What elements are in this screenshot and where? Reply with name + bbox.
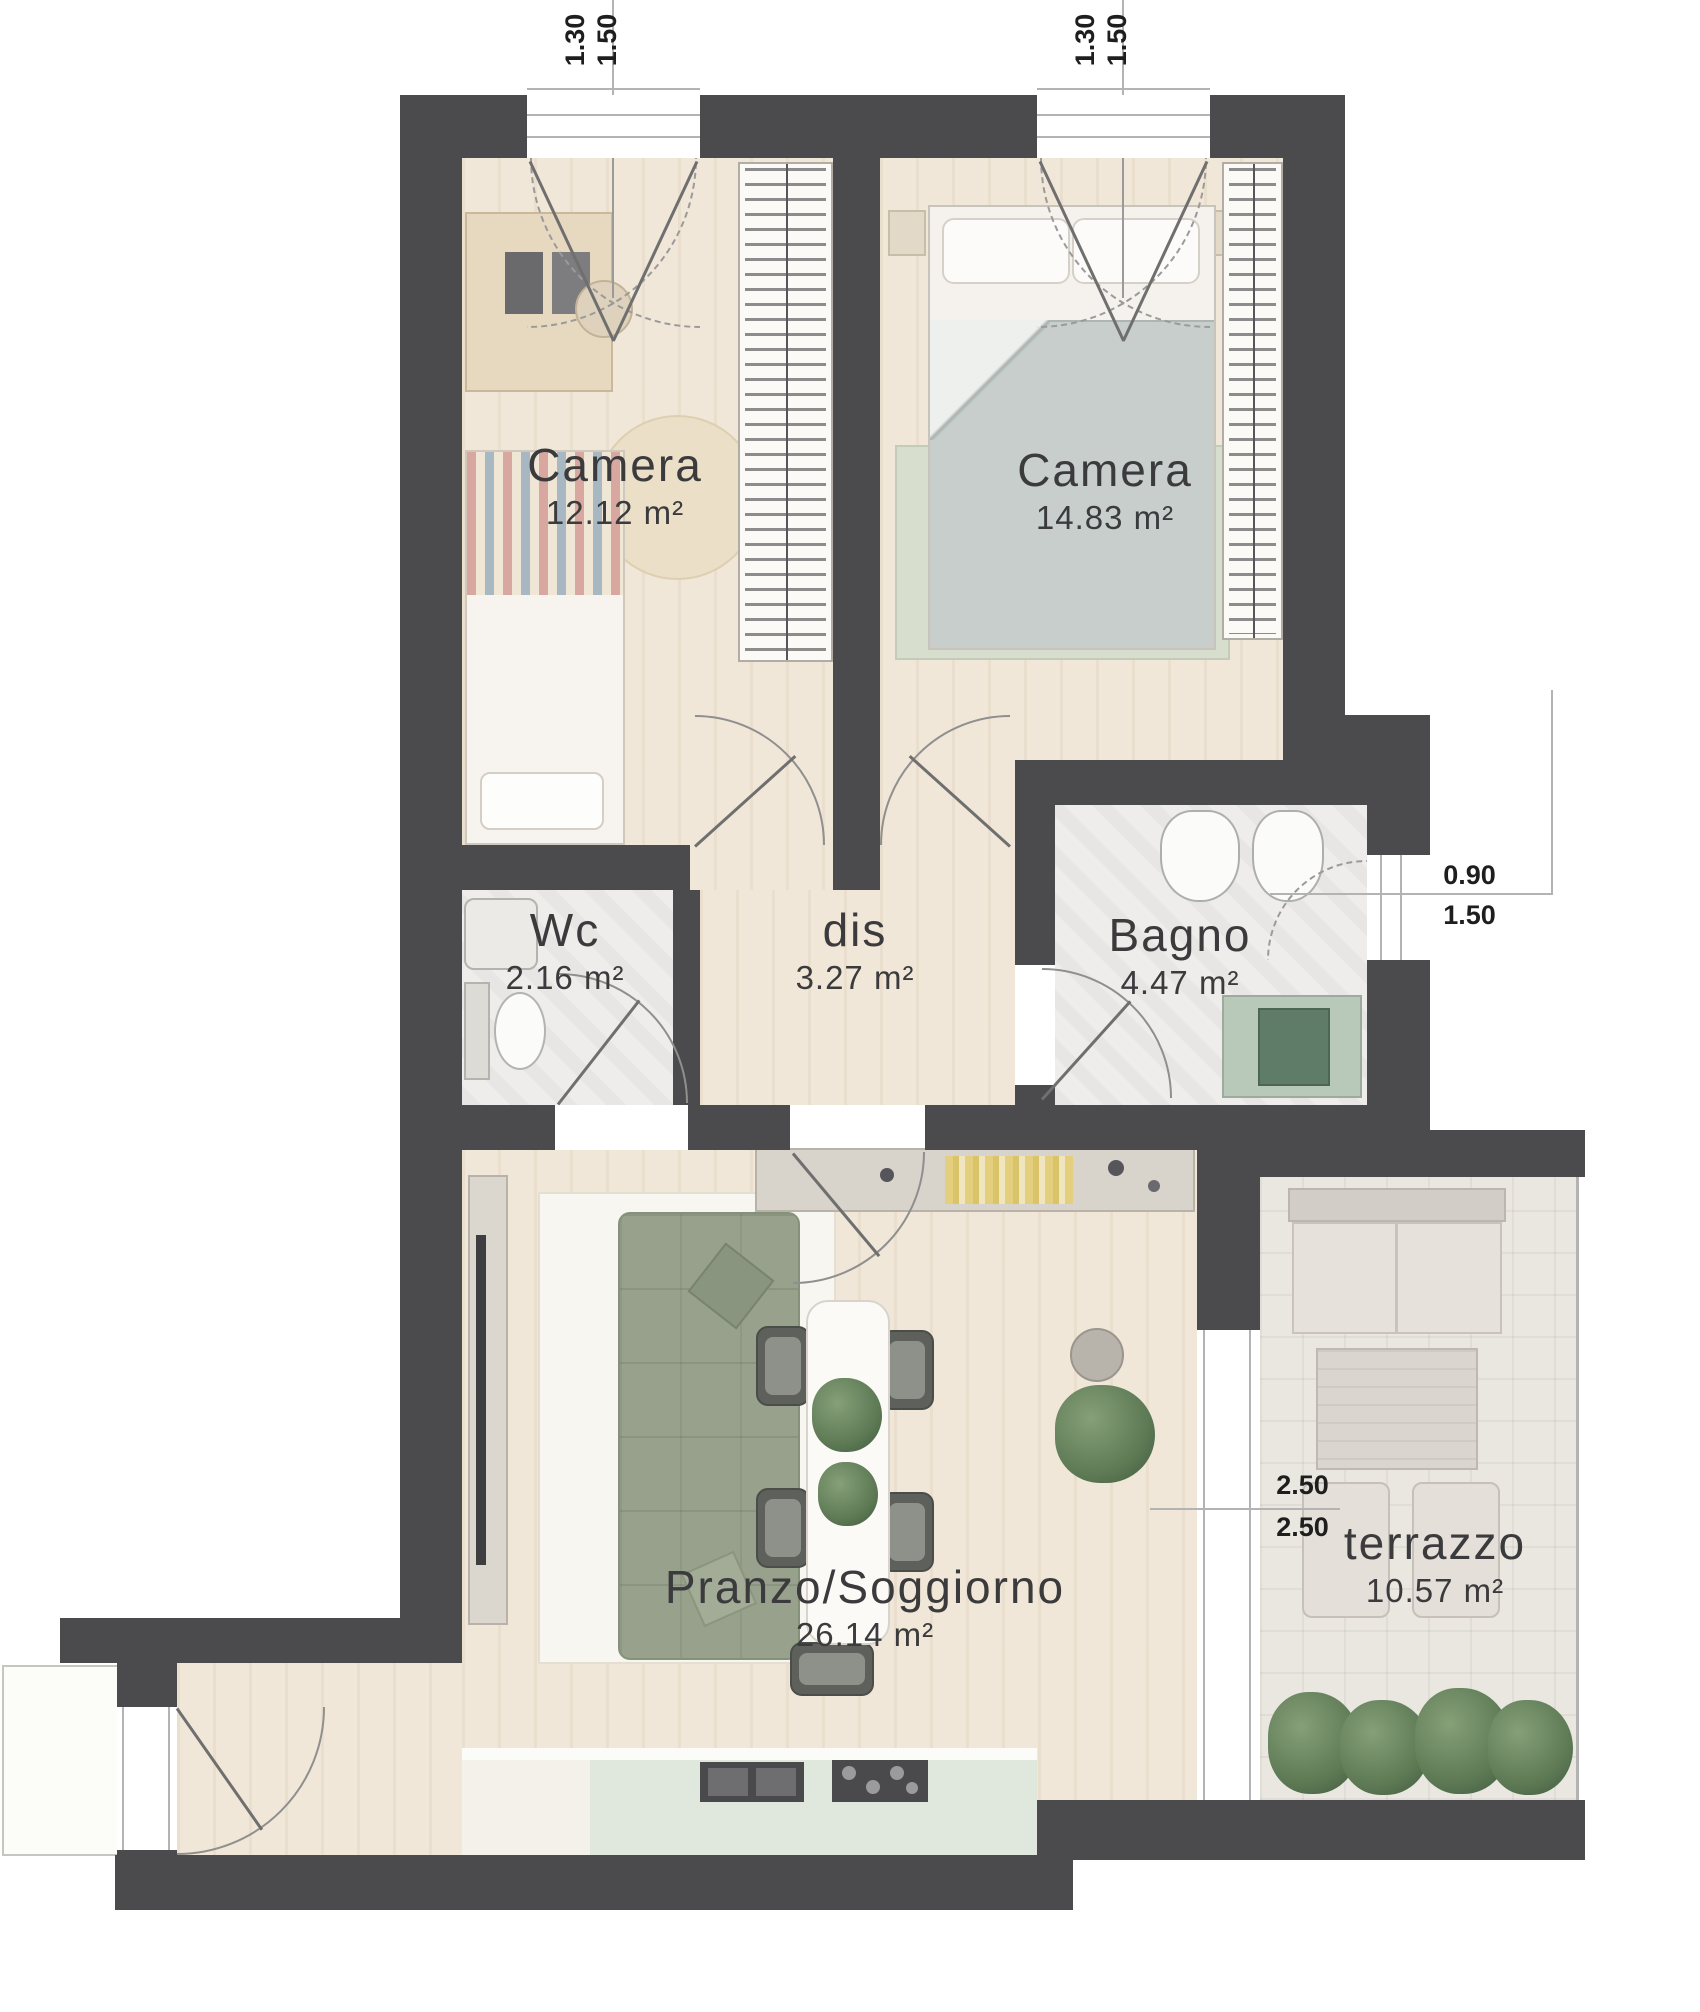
duvet-fold-line	[930, 320, 1050, 440]
stove-burner	[906, 1782, 918, 1794]
wall-living-top-b	[688, 1105, 790, 1150]
room-label-camera-2: Camera 14.83 m²	[970, 445, 1240, 536]
window-frame-line	[1400, 855, 1402, 960]
terrace-sofa-back	[1288, 1188, 1506, 1222]
terrace-table	[1316, 1348, 1478, 1470]
window-swing-arc	[1040, 158, 1210, 328]
wall-bedroom-2-bottom	[1015, 760, 1367, 805]
glass-door-line	[1249, 1330, 1251, 1800]
room-name: dis	[755, 905, 955, 957]
door-arc-dis-living	[793, 1152, 925, 1284]
wall-bedroom-1-bottom	[400, 845, 690, 890]
table-plant-1	[812, 1378, 882, 1452]
door-jamb-line	[122, 1707, 124, 1850]
wall-bottom-right	[1073, 1800, 1585, 1860]
wc-toilet-tank	[464, 982, 490, 1080]
bed-single-pillow	[480, 772, 604, 830]
door-arc-bedroom-2	[880, 715, 1010, 845]
wc-toilet-bowl	[494, 992, 546, 1070]
window-frame-line	[1037, 114, 1210, 116]
room-name: Pranzo/Soggiorno	[615, 1562, 1115, 1614]
window-swing-arc	[530, 158, 700, 328]
room-area: 3.27 m²	[755, 960, 955, 997]
wall-dis-bagno-upper	[1015, 805, 1055, 965]
room-name: Bagno	[1075, 910, 1285, 962]
wall-right-step	[1283, 715, 1430, 760]
dining-chair	[756, 1488, 810, 1568]
wardrobe-rail	[1253, 164, 1255, 638]
nightstand-left	[888, 210, 926, 256]
room-label-terrazzo: terrazzo 10.57 m²	[1310, 1518, 1560, 1609]
wall-living-top-a	[400, 1105, 555, 1150]
wall-bottom-step	[1037, 1800, 1073, 1860]
stove-burner	[842, 1766, 856, 1780]
terrace-plant	[1488, 1700, 1573, 1795]
room-area: 10.57 m²	[1310, 1573, 1560, 1610]
wardrobe-bedroom-1	[738, 162, 833, 662]
wall-terrace-top	[1197, 1130, 1585, 1177]
wall-top-segment	[400, 95, 527, 158]
dim-label: 1.50	[1432, 900, 1507, 930]
dim-label: 1.30	[1070, 5, 1100, 75]
bagno-sink	[1160, 810, 1240, 902]
dim-line	[1150, 1508, 1340, 1510]
window-frame-line	[1380, 855, 1382, 960]
floor-plant	[1055, 1385, 1155, 1483]
dim-label: 1.50	[1102, 5, 1132, 75]
room-label-pranzo-soggiorno: Pranzo/Soggiorno 26.14 m²	[615, 1562, 1115, 1653]
wall-bedroom-divider	[833, 158, 880, 890]
pouf	[1070, 1328, 1124, 1382]
kitchen-counter-left	[462, 1748, 590, 1855]
dim-label: 1.50	[592, 5, 622, 75]
dining-chair	[756, 1326, 810, 1406]
dim-line	[1551, 690, 1553, 895]
console-books	[945, 1156, 1073, 1204]
window-top-right	[1037, 95, 1210, 158]
exterior-landing	[2, 1665, 119, 1856]
wall-entry-stub-upper	[117, 1663, 177, 1707]
kitchen-sink-basin	[708, 1768, 748, 1796]
tv-screen	[476, 1235, 486, 1565]
wall-bagno-right-lower	[1367, 960, 1430, 1110]
shower-tray	[1258, 1008, 1330, 1086]
wall-living-bottom	[115, 1855, 1073, 1910]
room-area: 2.16 m²	[465, 960, 665, 997]
window-frame-line	[1037, 136, 1210, 138]
dim-label: 1.30	[560, 5, 590, 75]
window-bagno	[1367, 855, 1430, 960]
table-plant-2	[818, 1462, 878, 1526]
console-decor-dot-2	[1108, 1160, 1124, 1176]
wall-top-segment	[700, 95, 1037, 158]
room-area: 26.14 m²	[615, 1617, 1115, 1654]
wall-entry-top	[60, 1618, 462, 1663]
room-name: Wc	[465, 905, 665, 957]
terrace-sofa-cushion-line	[1395, 1224, 1398, 1332]
wardrobe-rail	[786, 164, 788, 660]
terrace-edge-line	[1576, 1177, 1579, 1800]
room-label-camera-1: Camera 12.12 m²	[480, 440, 750, 531]
door-jamb-line	[168, 1707, 170, 1850]
dim-line	[1270, 893, 1553, 895]
door-arc-entry	[177, 1707, 325, 1855]
room-label-bagno: Bagno 4.47 m²	[1075, 910, 1285, 1001]
window-center-line	[612, 158, 614, 298]
window-frame-line	[527, 136, 700, 138]
room-area: 14.83 m²	[970, 500, 1240, 537]
floor-plan: 1.30 1.50 1.30 1.50 0.90 1.50 2.50 2.50 …	[0, 0, 1700, 2012]
wall-right-bedroom-2	[1283, 95, 1345, 760]
wall-bagno-right-upper	[1367, 760, 1430, 855]
room-area: 12.12 m²	[480, 495, 750, 532]
room-name: Camera	[970, 445, 1240, 497]
glass-door-line	[1203, 1330, 1205, 1800]
room-label-dis: dis 3.27 m²	[755, 905, 955, 996]
console-decor-dot-3	[1148, 1180, 1160, 1192]
room-area: 4.47 m²	[1075, 965, 1285, 1002]
room-name: terrazzo	[1310, 1518, 1560, 1570]
window-center-line	[1122, 158, 1124, 298]
window-frame-line	[527, 114, 700, 116]
wardrobe-bedroom-2	[1222, 162, 1283, 640]
kitchen-counter-edge	[462, 1748, 1037, 1760]
room-name: Camera	[480, 440, 750, 492]
window-top-left	[527, 95, 700, 158]
tv-unit	[468, 1175, 508, 1625]
dim-label: 0.90	[1432, 860, 1507, 890]
stove-burner	[866, 1780, 880, 1794]
stove-burner	[890, 1766, 904, 1780]
dim-label: 2.50	[1265, 1470, 1340, 1502]
room-label-wc: Wc 2.16 m²	[465, 905, 665, 996]
kitchen-sink-basin-2	[756, 1768, 796, 1796]
